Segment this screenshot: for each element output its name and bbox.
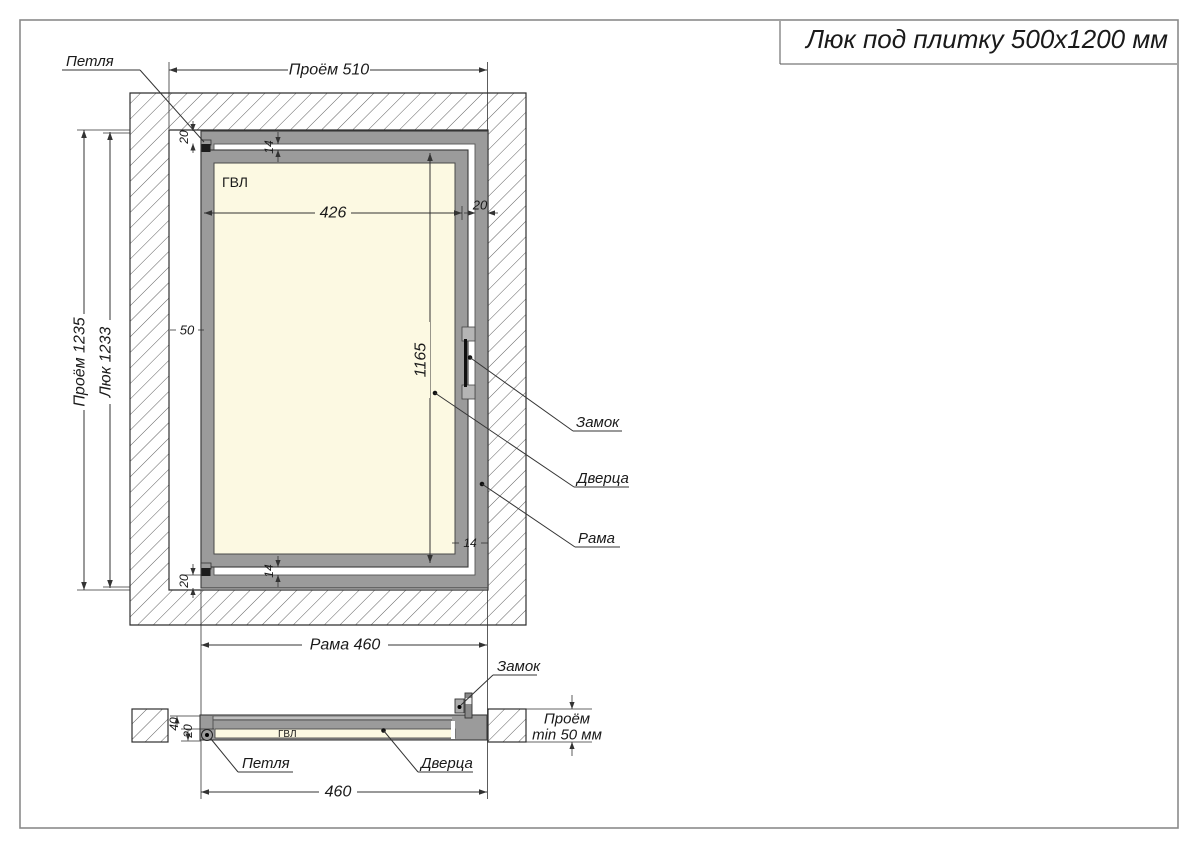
section-view: ГВЛ Замок	[132, 658, 602, 801]
frame-label: Рама	[578, 530, 615, 547]
door-label-section: Дверца	[419, 755, 473, 772]
dim-section-width: 460	[201, 783, 487, 801]
dim-opening-height-text: Проём 1235	[72, 317, 89, 406]
lock-label-section: Замок	[497, 658, 541, 675]
dim-gap-top-text: 14	[262, 140, 276, 154]
wall-section-right	[488, 709, 526, 742]
hinge-top	[201, 140, 211, 152]
title-block: Люк под плитку 500х1200 мм	[780, 21, 1177, 64]
lock-callout-section: Замок	[461, 658, 541, 705]
dim-opening-depth-line2: min 50 мм	[532, 727, 602, 744]
hinge-callout-section: Петля	[211, 739, 293, 772]
dim-side-gap: 50	[170, 323, 204, 338]
dim-panel-width-text: 426	[320, 205, 347, 222]
hinge-label-section: Петля	[242, 755, 290, 772]
hatch-assembly-section: ГВЛ	[200, 693, 487, 741]
hinge-label: Петля	[66, 53, 114, 70]
dim-frame-width-text: Рама 460	[310, 637, 381, 654]
lock-label: Замок	[576, 414, 620, 431]
gvl-section-label: ГВЛ	[278, 729, 297, 740]
dim-opening-depth-line1: Проём	[544, 711, 590, 728]
dim-profile-bottom-text: 20	[177, 574, 191, 589]
dim-section-width-text: 460	[325, 784, 352, 801]
drawing-sheet: Люк под плитку 500х1200 мм ГВЛ	[0, 0, 1200, 849]
wall-section-left	[132, 709, 168, 742]
gvl-panel-label: ГВЛ	[222, 174, 248, 190]
dim-hatch-height: Люк 1233	[96, 132, 130, 588]
dim-gap-right-text: 14	[463, 536, 477, 550]
technical-drawing: Люк под плитку 500х1200 мм ГВЛ	[0, 0, 1200, 849]
hinge-bottom	[201, 563, 211, 576]
hinge-section	[202, 730, 213, 741]
dim-panel-height-text: 1165	[413, 343, 430, 378]
dim-gap-bottom-text: 14	[262, 564, 276, 578]
door-label: Дверца	[575, 470, 629, 487]
dim-hatch-height-text: Люк 1233	[98, 327, 115, 399]
gvl-section-strip	[215, 729, 455, 738]
dim-depth-total-text: 40	[167, 717, 181, 731]
dim-side-gap-text: 50	[180, 323, 195, 338]
front-view: ГВЛ Проём 510 Петля	[62, 53, 629, 799]
dim-opening-depth: Проём min 50 мм	[526, 695, 602, 756]
dim-profile-right-text: 20	[472, 198, 488, 213]
dim-profile-top-text: 20	[177, 130, 191, 145]
dim-opening-width-text: Проём 510	[289, 62, 370, 79]
dim-frame-width: Рама 460	[201, 636, 487, 654]
dim-depth-door-text: 20	[181, 724, 195, 739]
drawing-title: Люк под плитку 500х1200 мм	[804, 24, 1168, 54]
lock-slot	[451, 721, 455, 739]
